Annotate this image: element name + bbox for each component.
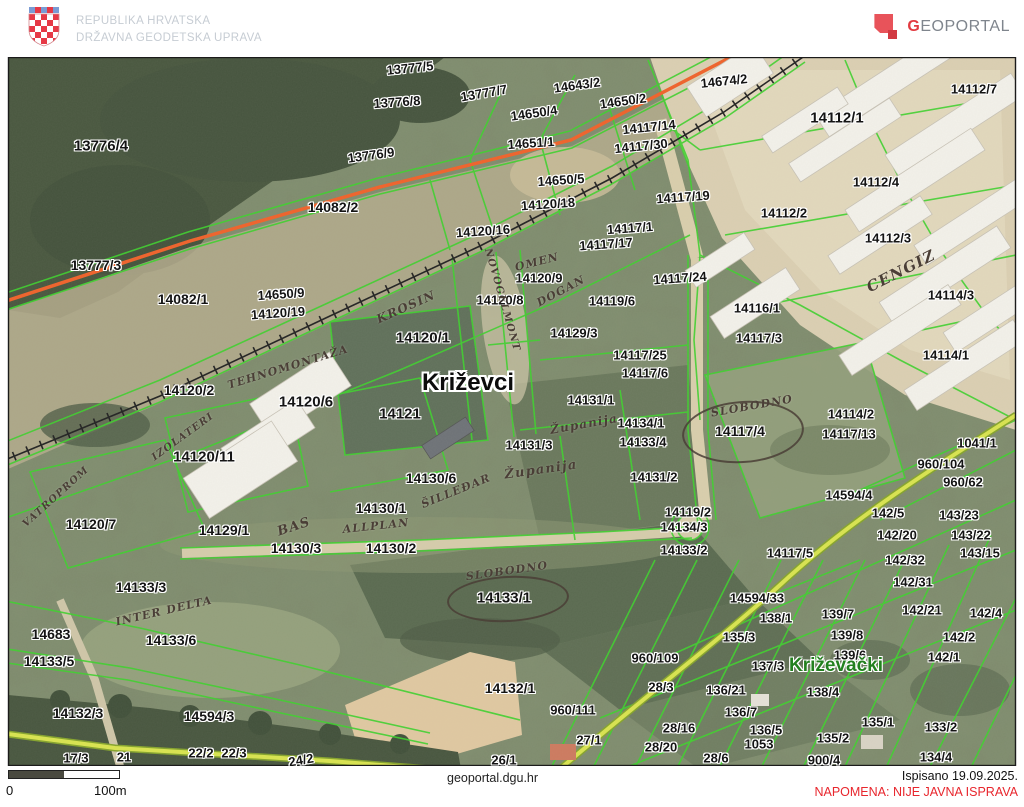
warning-note: NAPOMENA: NIJE JAVNA ISPRAVA [814,785,1018,799]
organization-name: REPUBLIKA HRVATSKA DRŽAVNA GEODETSKA UPR… [76,13,262,48]
aerial-map-image [0,0,1024,807]
scale-end-label: 100m [94,783,127,798]
org-line1: REPUBLIKA HRVATSKA [76,13,262,30]
geoportal-logo: GEOPORTAL [874,12,1010,42]
page-footer: 0 100m geoportal.dgu.hr Ispisano 19.09.2… [0,766,1024,807]
source-url: geoportal.dgu.hr [447,771,538,785]
geoportal-logo-text: GEOPORTAL [907,18,1010,36]
croatia-coat-of-arms-icon [27,7,61,47]
logo-letter-g: G [907,18,920,35]
org-line2: DRŽAVNA GEODETSKA UPRAVA [76,30,262,47]
map-canvas: 13777/514643/214674/213776/813777/714650… [0,0,1024,807]
geoportal-logo-icon [874,12,900,42]
logo-letters-rest: EOPORTAL [920,18,1010,35]
printed-date: Ispisano 19.09.2025. [902,769,1018,783]
scale-start-label: 0 [6,783,13,798]
scale-bar [8,770,120,779]
page-header: REPUBLIKA HRVATSKA DRŽAVNA GEODETSKA UPR… [0,0,1024,57]
print-page: 13777/514643/214674/213776/813777/714650… [0,0,1024,807]
map-terrain [0,33,1024,790]
